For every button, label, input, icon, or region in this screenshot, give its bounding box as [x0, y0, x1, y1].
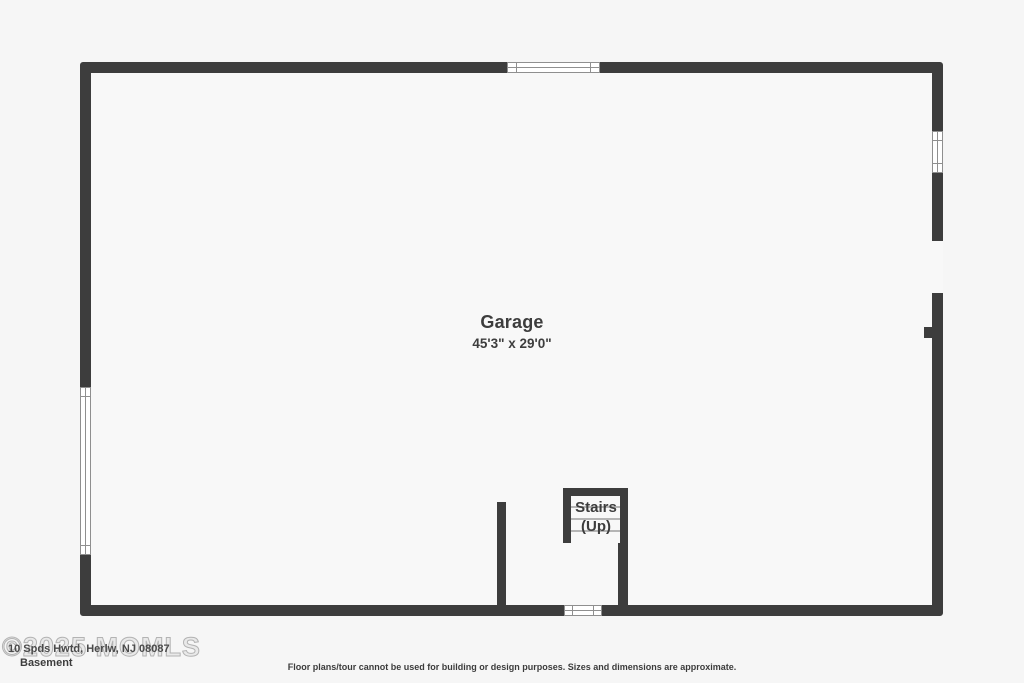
window-end-tick	[933, 163, 942, 164]
wall-stub	[924, 327, 933, 338]
window-glass-line	[85, 388, 86, 554]
window-end-tick	[81, 396, 90, 397]
window-glass-line	[508, 67, 599, 68]
floorplan-page: { "plan": { "room": { "name": "Garage", …	[0, 0, 1024, 683]
stairs-side-wall	[618, 541, 628, 606]
window-icon-top	[507, 62, 600, 73]
room-name: Garage	[412, 312, 612, 333]
window-end-tick	[81, 545, 90, 546]
window-glass-line	[937, 132, 938, 172]
window-end-tick	[590, 63, 591, 72]
window-icon-right	[932, 131, 943, 173]
window-icon-bottom	[564, 605, 602, 616]
window-end-tick	[933, 140, 942, 141]
stairs-label-line2: (Up)	[581, 517, 611, 536]
stairs-label-line1: Stairs	[575, 498, 617, 517]
door-opening	[932, 241, 943, 293]
window-icon-left	[80, 387, 91, 555]
window-glass-line	[565, 610, 601, 611]
window-end-tick	[593, 606, 594, 615]
room-dimensions: 45'3" x 29'0"	[412, 336, 612, 351]
room-label-garage: Garage 45'3" x 29'0"	[412, 312, 612, 351]
stairs-label: Stairs (Up)	[556, 494, 636, 540]
interior-wall-divider	[497, 502, 506, 606]
disclaimer-text: Floor plans/tour cannot be used for buil…	[0, 662, 1024, 672]
window-end-tick	[516, 63, 517, 72]
listing-address-text: 10 Spds Hwtd, Herlw, NJ 08087	[8, 643, 170, 655]
window-end-tick	[572, 606, 573, 615]
